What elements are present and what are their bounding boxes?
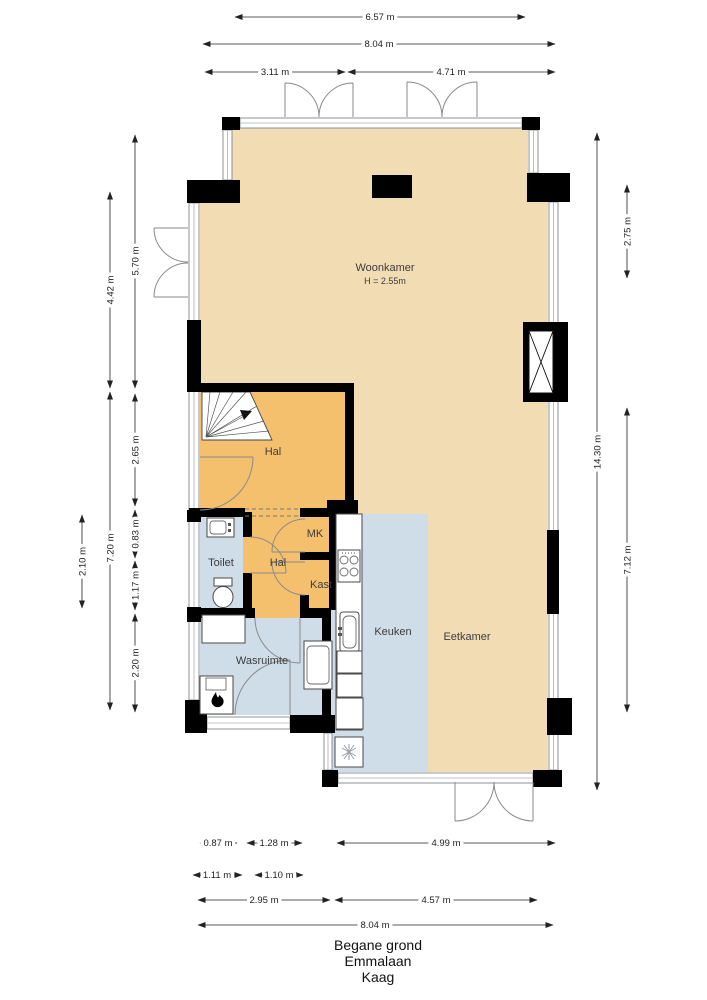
floor-plan-canvas: Woonkamer H = 2.55m Hal Toilet Hal MK Ka… — [0, 0, 707, 1000]
room-label-wasruimte: Wasruimte — [236, 655, 288, 667]
dimension: 4.71 m — [348, 67, 555, 78]
dimension: 2.65 m — [131, 394, 142, 506]
dimensions-right: 2.75 m 14.30 m 7.12 m — [593, 133, 634, 790]
floor-unit — [335, 737, 363, 767]
dimension-label: 4.42 m — [106, 275, 117, 304]
dimension-label: 0.87 m — [203, 838, 232, 849]
room-label-keuken: Keuken — [374, 626, 411, 638]
dimension: 4.99 m — [337, 838, 555, 849]
dimension-label: 4.71 m — [436, 67, 465, 78]
dimensions-top: 6.57 m 8.04 m 3.11 m 4.71 m — [203, 12, 555, 78]
dimension: 2.20 m — [131, 614, 142, 712]
dimension-label: 1.17 m — [131, 571, 142, 600]
title-city: Kaag — [362, 969, 395, 985]
room-label-hal-upper: Hal — [265, 446, 282, 458]
room-label-toilet: Toilet — [208, 557, 234, 569]
boiler-icon — [200, 676, 233, 714]
room-label-eetkamer: Eetkamer — [443, 631, 490, 643]
dimension-label: 3.11 m — [261, 67, 289, 78]
dimension: 2.75 m — [623, 185, 634, 278]
dimension: 3.11 m — [205, 67, 345, 78]
dimension: 6.57 m — [235, 12, 525, 23]
dimension: 2.10 m — [78, 515, 89, 608]
room-label-woonkamer: Woonkamer — [355, 262, 414, 274]
stove-icon — [338, 550, 360, 582]
washer-icon — [304, 641, 332, 689]
title-floor: Begane grond — [334, 937, 422, 953]
dimension: 1.10 m — [255, 870, 303, 881]
room-label-woonkamer-height: H = 2.55m — [364, 276, 406, 286]
dimension: 5.70 m — [131, 135, 142, 388]
room-label-kast: Kast — [310, 579, 332, 591]
dimension: 14.30 m — [593, 133, 604, 790]
dimension: 4.57 m — [335, 895, 537, 906]
dimension: 2.95 m — [198, 895, 330, 906]
dimension-label: 14.30 m — [593, 435, 604, 469]
dimension-label: 2.75 m — [623, 217, 634, 246]
kitchen-appliances — [336, 651, 363, 729]
toilet-icon — [213, 578, 233, 608]
dimension-label: 4.57 m — [421, 895, 450, 906]
fireplace — [523, 322, 568, 402]
dimension-label: 6.57 m — [365, 12, 394, 23]
dimension: 0.83 m — [131, 510, 142, 558]
floor-plan-page: Woonkamer H = 2.55m Hal Toilet Hal MK Ka… — [0, 0, 707, 1000]
dimension: 7.12 m — [623, 408, 634, 712]
dimension-label: 0.83 m — [131, 519, 142, 548]
dimension: 1.28 m — [247, 838, 302, 849]
dimension: 1.17 m — [131, 561, 142, 610]
dimension-label: 1.11 m — [203, 870, 231, 881]
dimension-label: 5.70 m — [131, 246, 142, 275]
dimension: 8.04 m — [203, 39, 555, 50]
dimension-label: 7.12 m — [623, 545, 634, 574]
kitchen-sink-icon — [338, 612, 359, 652]
dimension-label: 8.04 m — [360, 920, 389, 931]
dimension-label: 8.04 m — [364, 39, 393, 50]
dimension-label: 2.10 m — [78, 547, 89, 576]
worktop-icon — [202, 615, 245, 643]
dimension-label: 4.99 m — [431, 838, 460, 849]
title-street: Emmalaan — [345, 953, 412, 969]
title-block: Begane grond Emmalaan Kaag — [334, 937, 422, 985]
dimension-label: 1.10 m — [264, 870, 293, 881]
dimension: 4.42 m — [106, 192, 117, 388]
dimension-label: 1.28 m — [259, 838, 288, 849]
dimension-label: 2.20 m — [131, 648, 142, 677]
dimension: 8.04 m — [198, 920, 553, 931]
toilet-sink-icon — [207, 518, 234, 537]
dimension-label: 7.20 m — [106, 533, 117, 562]
room-label-hal-lower: Hal — [270, 557, 287, 569]
dimension-label: 2.65 m — [131, 435, 142, 464]
dimensions-bottom: 0.87 m 1.28 m 4.99 m 1.11 m 1.10 m 2.95 … — [193, 838, 555, 931]
dimension: 1.11 m — [193, 870, 242, 881]
room-label-mk: MK — [307, 528, 324, 540]
dimensions-left: 5.70 m 4.42 m 2.65 m 0.83 m 1.17 m 2.20 … — [78, 135, 142, 712]
dimension: 7.20 m — [106, 392, 117, 710]
dimension: 0.87 m — [200, 838, 237, 849]
dimension-label: 2.95 m — [249, 895, 278, 906]
